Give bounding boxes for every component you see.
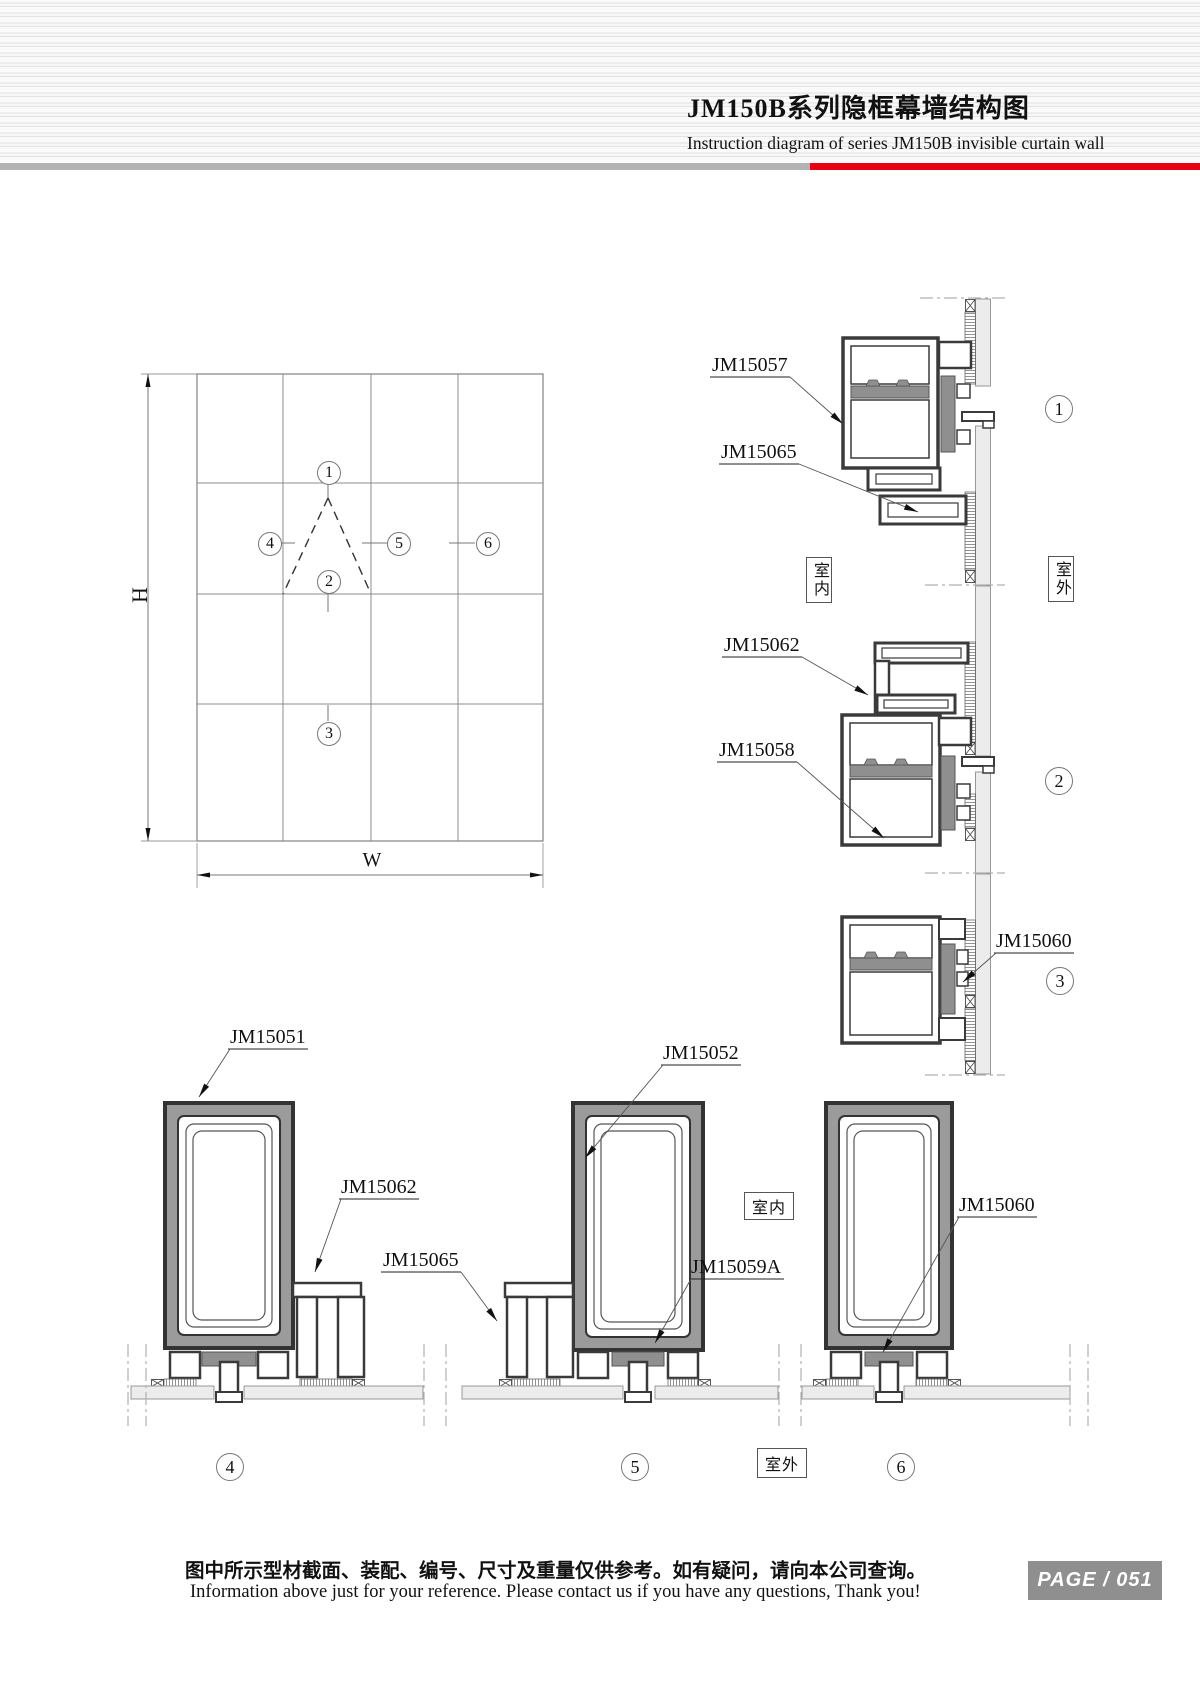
- elevation-marker-4: 4: [258, 532, 282, 556]
- outdoor-label-detail1: 室外: [1048, 556, 1074, 602]
- detail-marker-4: 4: [216, 1453, 244, 1481]
- page-number-badge: PAGE / 051: [1028, 1561, 1162, 1600]
- elevation-marker-1: 1: [317, 461, 341, 485]
- callout-jm15062-detail2: JM15062: [724, 634, 800, 656]
- callout-jm15060-detail6: JM15060: [959, 1194, 1035, 1216]
- elevation-marker-ticks: [280, 483, 475, 721]
- footer-note-cn: 图中所示型材截面、装配、编号、尺寸及重量仅供参考。如有疑问，请向本公司查询。: [185, 1554, 926, 1583]
- callout-jm15060-detail3: JM15060: [996, 930, 1072, 952]
- callout-jm15062-detail4: JM15062: [341, 1176, 417, 1198]
- detail-marker-5: 5: [621, 1453, 649, 1481]
- callout-jm15065-detail5: JM15065: [383, 1249, 459, 1271]
- outdoor-label-bottom: 室外: [757, 1448, 807, 1478]
- callout-jm15051: JM15051: [230, 1026, 306, 1048]
- detail-marker-2: 2: [1045, 767, 1073, 795]
- height-dimension-label: H: [127, 575, 153, 615]
- indoor-label-bottom: 室内: [744, 1192, 794, 1220]
- callout-jm15065-detail1: JM15065: [721, 441, 797, 463]
- indoor-label-detail1: 室内: [806, 557, 832, 603]
- detail-marker-1: 1: [1045, 395, 1073, 423]
- detail-4-section: [131, 1103, 423, 1402]
- footer-note-en: Information above just for your referenc…: [190, 1582, 921, 1603]
- detail-3-section: [842, 917, 968, 1043]
- elevation-marker-2: 2: [317, 570, 341, 594]
- detail-6-section: [802, 1103, 1070, 1402]
- diagram-linework: [0, 0, 1200, 1697]
- catalog-page: JM150B系列隐框幕墙结构图 Instruction diagram of s…: [0, 0, 1200, 1697]
- elevation-grid: [141, 374, 543, 888]
- elevation-marker-5: 5: [387, 532, 411, 556]
- callout-jm15059a: JM15059A: [691, 1256, 781, 1278]
- detail-marker-6: 6: [887, 1453, 915, 1481]
- width-dimension-label: W: [352, 849, 392, 872]
- callout-jm15057: JM15057: [712, 354, 788, 376]
- detail-5-section: [462, 1103, 778, 1402]
- callout-jm15052: JM15052: [663, 1042, 739, 1064]
- elevation-marker-3: 3: [317, 722, 341, 746]
- callout-jm15058: JM15058: [719, 739, 795, 761]
- elevation-dimension-arrows: [146, 374, 544, 878]
- section-gasket-hatch: [965, 312, 976, 1061]
- elevation-marker-6: 6: [476, 532, 500, 556]
- detail-marker-3: 3: [1046, 967, 1074, 995]
